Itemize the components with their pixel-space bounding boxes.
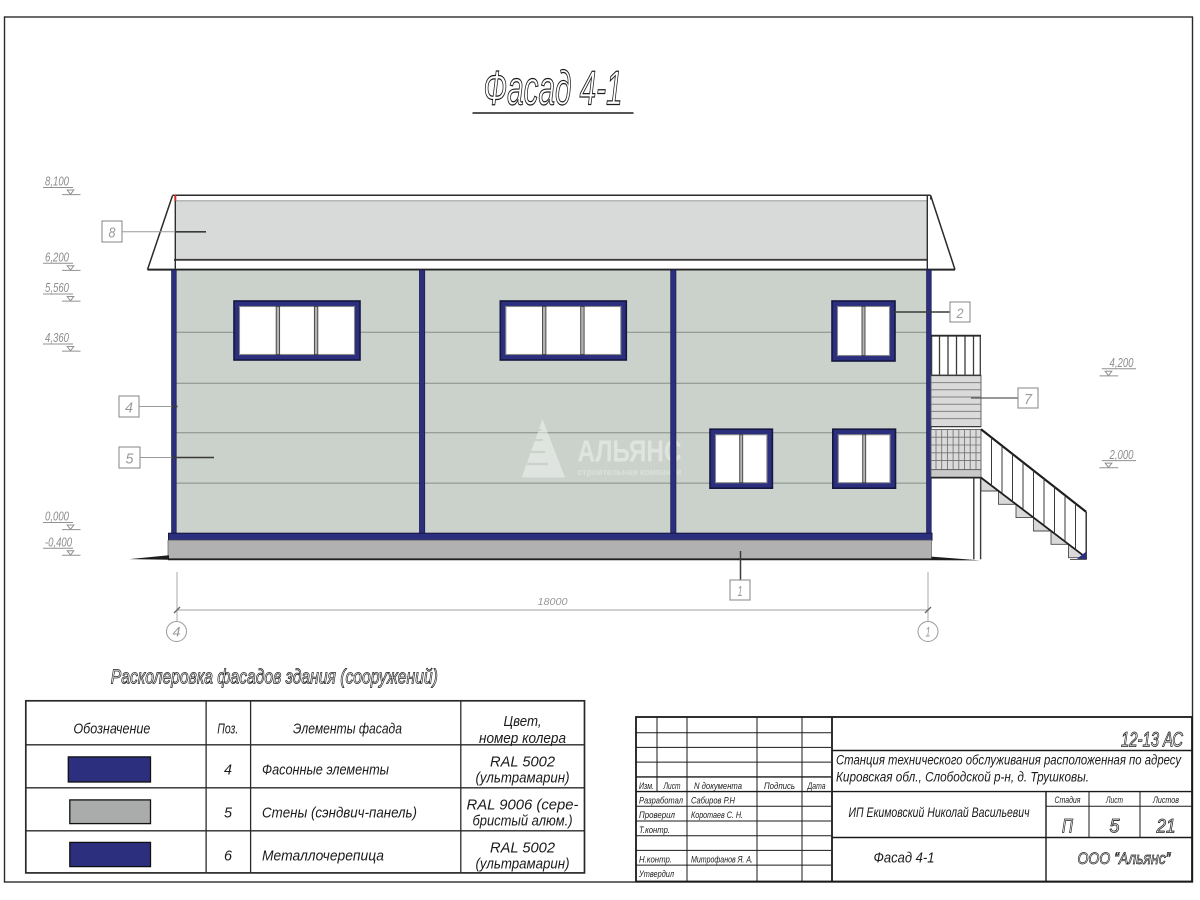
svg-text:Митрофанов Я. А.: Митрофанов Я. А. [691,854,753,865]
svg-text:АЛЬЯНС: АЛЬЯНС [578,434,682,469]
svg-text:Изм.: Изм. [639,781,654,791]
svg-text:Подпись: Подпись [764,781,795,791]
svg-text:Стадия: Стадия [1055,795,1081,806]
svg-text:8: 8 [109,225,117,242]
svg-text:4: 4 [173,624,181,640]
svg-text:Расколеровка фасадов здания (с: Расколеровка фасадов здания (сооружений) [111,667,438,689]
svg-text:Цвет,: Цвет, [504,713,542,730]
svg-text:4: 4 [125,400,133,417]
svg-text:Фасад 4-1: Фасад 4-1 [484,63,623,116]
svg-text:RAL 5002: RAL 5002 [490,754,556,771]
svg-text:21: 21 [1156,817,1176,838]
svg-text:4: 4 [224,762,232,779]
svg-text:4,360: 4,360 [45,330,70,345]
svg-text:(ультрамарин): (ультрамарин) [476,770,570,787]
svg-text:Дата: Дата [807,781,826,791]
svg-text:Разработал: Разработал [639,796,684,807]
svg-text:Т.контр.: Т.контр. [639,825,670,836]
svg-text:Поз.: Поз. [217,721,238,738]
svg-text:Станция технического обслужива: Станция технического обслуживания распол… [836,753,1182,768]
svg-text:5: 5 [224,805,233,822]
svg-text:Металлочерепица: Металлочерепица [262,848,384,865]
svg-text:Проверил: Проверил [639,810,676,821]
svg-text:Лист: Лист [1105,795,1123,806]
svg-text:Сабиров Р.Н: Сабиров Р.Н [691,796,735,807]
svg-text:Утвердил: Утвердил [638,869,674,880]
svg-text:N документа: N документа [694,781,742,791]
svg-text:5: 5 [1110,817,1120,838]
svg-text:ИП Екимовский Николай Васильев: ИП Екимовский Николай Васильевич [849,804,1030,820]
svg-text:RAL 9006 (сере-: RAL 9006 (сере- [467,797,579,814]
svg-text:Лист: Лист [663,781,681,791]
svg-text:бристый алюм.): бристый алюм.) [473,813,573,830]
svg-text:8,100: 8,100 [45,174,70,189]
svg-text:5,560: 5,560 [45,280,70,295]
svg-text:0,000: 0,000 [45,509,70,524]
svg-text:6: 6 [224,848,233,865]
svg-text:Фасад 4-1: Фасад 4-1 [874,850,935,867]
svg-text:строительная компания: строительная компания [578,467,682,478]
svg-text:П: П [1062,817,1073,838]
svg-text:-0,400: -0,400 [45,534,73,549]
svg-text:5: 5 [126,451,135,468]
svg-text:(ультрамарин): (ультрамарин) [476,856,570,873]
svg-text:Листов: Листов [1152,795,1179,806]
svg-text:Коротаев С. Н.: Коротаев С. Н. [691,810,743,821]
svg-text:Обозначение: Обозначение [73,721,150,738]
svg-text:Фасонные элементы: Фасонные элементы [262,762,389,779]
svg-text:2: 2 [956,305,964,321]
svg-text:1: 1 [738,583,743,600]
svg-text:Элементы фасада: Элементы фасада [293,721,402,738]
svg-text:12-13 АС: 12-13 АС [1121,729,1184,752]
svg-text:номер колера: номер колера [479,730,566,747]
svg-text:ООО “Альянс”: ООО “Альянс” [1078,849,1172,868]
svg-text:18000: 18000 [538,596,568,608]
svg-text:2,000: 2,000 [1109,447,1134,462]
svg-text:4,200: 4,200 [1110,355,1135,370]
svg-text:Н.контр.: Н.контр. [639,854,672,865]
svg-text:1: 1 [926,624,931,640]
svg-text:6,200: 6,200 [45,250,70,265]
svg-text:7: 7 [1024,391,1033,408]
svg-text:RAL 5002: RAL 5002 [490,840,556,857]
svg-text:Кировская обл., Слободской р-н: Кировская обл., Слободской р-н, д. Трушк… [836,770,1089,785]
svg-text:Стены (сэндвич-панель): Стены (сэндвич-панель) [262,805,417,822]
